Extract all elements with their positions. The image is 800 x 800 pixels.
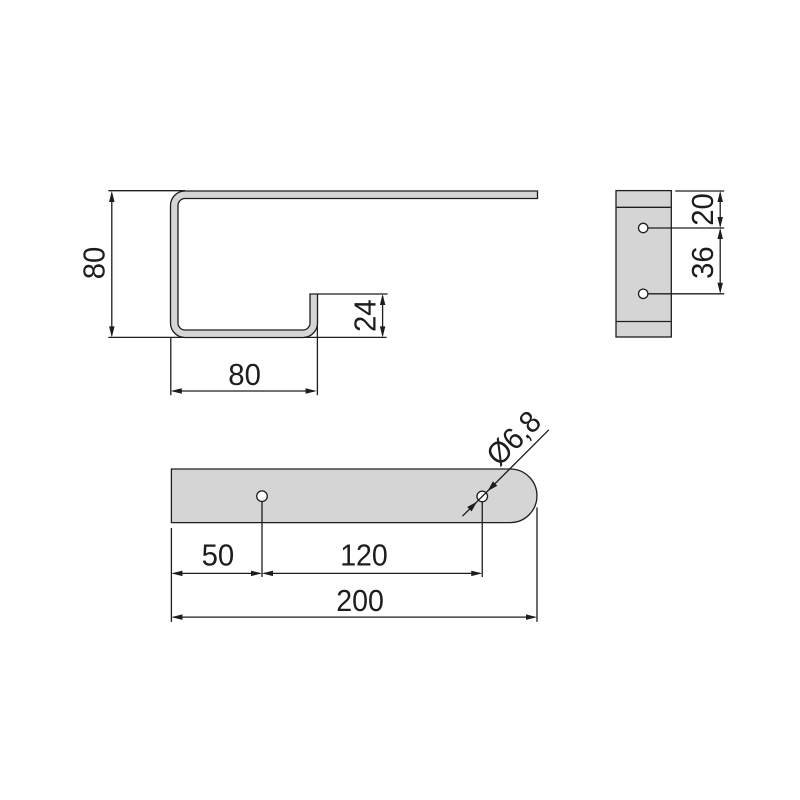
svg-text:200: 200 xyxy=(336,583,384,618)
svg-text:24: 24 xyxy=(347,299,382,332)
svg-text:80: 80 xyxy=(76,247,111,280)
svg-text:80: 80 xyxy=(228,357,261,392)
svg-text:20: 20 xyxy=(685,193,720,226)
svg-text:50: 50 xyxy=(202,538,235,573)
svg-text:120: 120 xyxy=(340,537,388,572)
svg-text:36: 36 xyxy=(685,246,720,279)
